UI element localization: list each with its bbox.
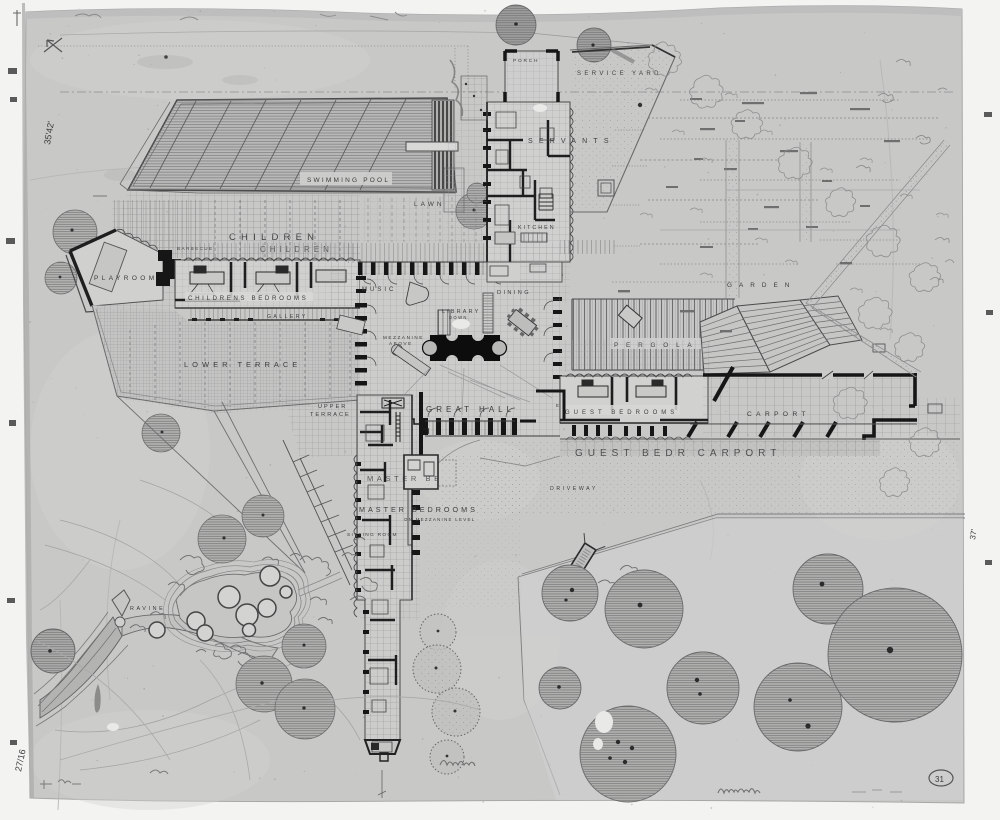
svg-text:GALLERY: GALLERY: [267, 314, 308, 320]
svg-text:PLAYROOM: PLAYROOM: [94, 275, 158, 282]
svg-text:LOWER TERRACE: LOWER TERRACE: [184, 360, 301, 369]
svg-text:MEZZANINE: MEZZANINE: [383, 335, 424, 340]
svg-text:CHILDRENS BEDROOMS: CHILDRENS BEDROOMS: [188, 295, 308, 302]
svg-text:SITTING ROOM: SITTING ROOM: [347, 532, 398, 538]
svg-text:KITCHEN: KITCHEN: [518, 225, 556, 231]
svg-text:UPPER: UPPER: [318, 404, 347, 410]
svg-text:MUSIC: MUSIC: [362, 287, 396, 293]
svg-text:PORCH: PORCH: [513, 58, 539, 64]
svg-text:ABOVE: ABOVE: [389, 341, 413, 346]
svg-text:37': 37': [968, 528, 979, 540]
svg-text:RAVINE: RAVINE: [130, 606, 165, 612]
svg-text:TERRACE: TERRACE: [310, 412, 351, 418]
svg-text:CARPORT: CARPORT: [747, 411, 810, 418]
svg-text:SWIMMING POOL: SWIMMING POOL: [307, 177, 390, 184]
svg-text:GUEST BEDROOMS: GUEST BEDROOMS: [565, 410, 678, 416]
svg-text:31: 31: [935, 775, 944, 784]
svg-text:GREAT HALL: GREAT HALL: [426, 405, 515, 414]
